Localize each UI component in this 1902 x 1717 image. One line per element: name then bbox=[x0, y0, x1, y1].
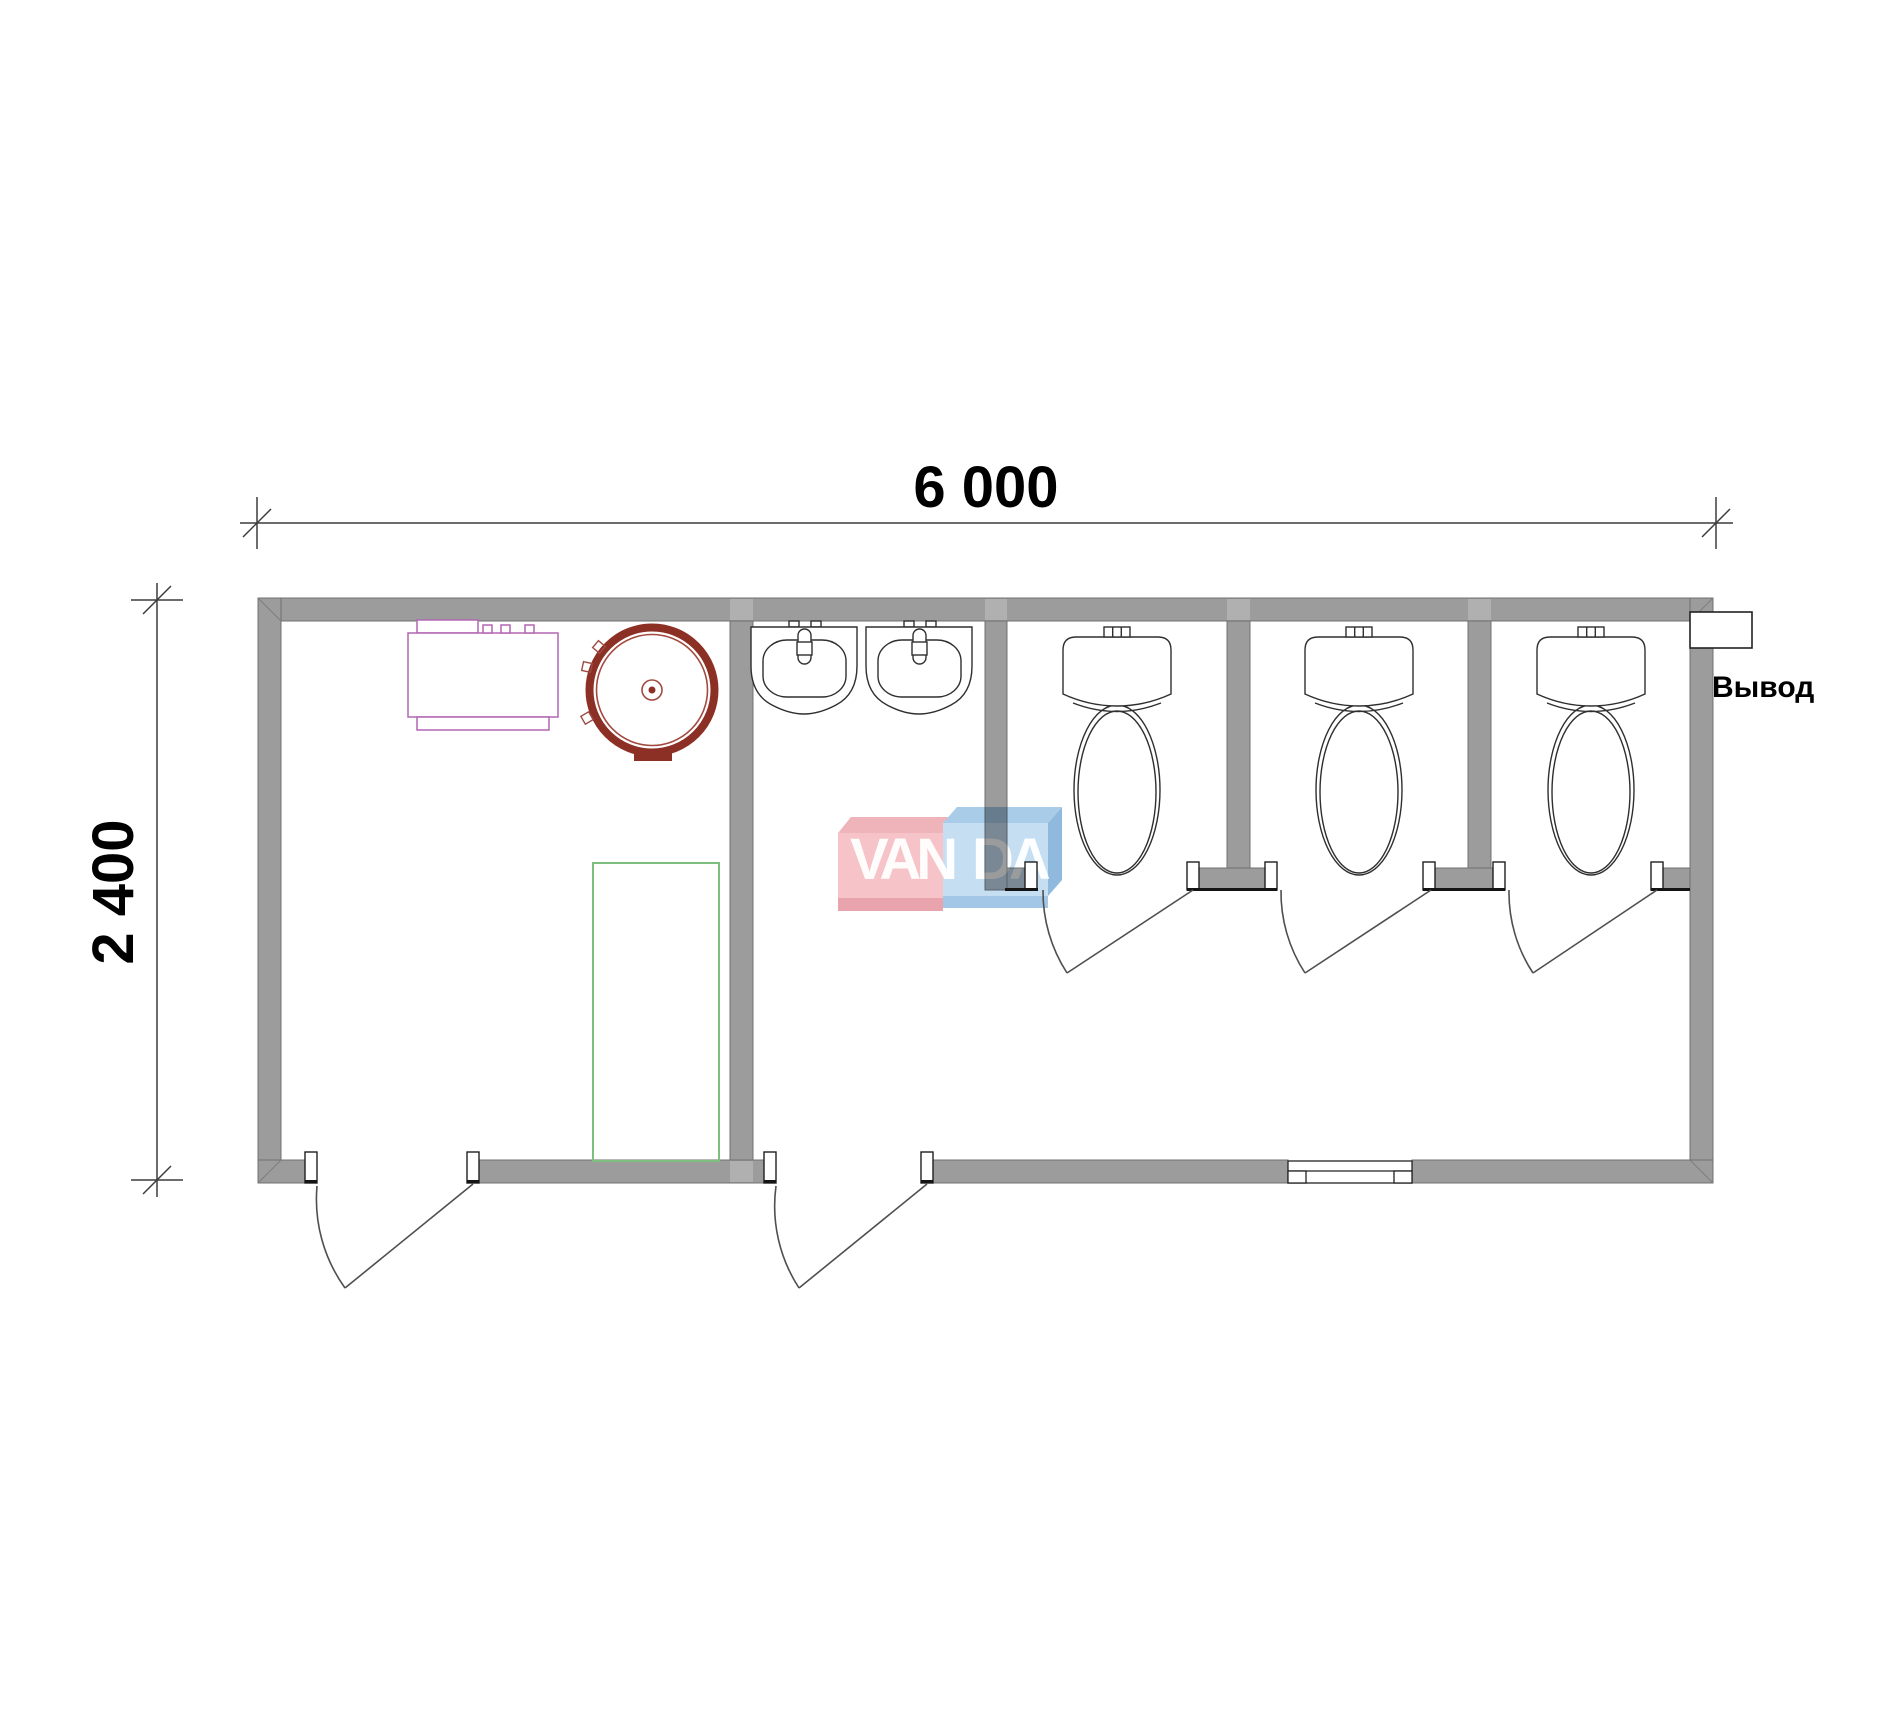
thresholds bbox=[305, 890, 1690, 1182]
toilet-tank bbox=[1305, 637, 1413, 706]
washbasin-1 bbox=[751, 621, 857, 714]
toilet-bowl-outer bbox=[1074, 705, 1160, 875]
jamb bbox=[1025, 862, 1037, 890]
wall-tap bbox=[789, 621, 799, 627]
jamb bbox=[921, 1152, 933, 1183]
window-end-block bbox=[1394, 1171, 1412, 1183]
boiler-knob bbox=[501, 625, 510, 633]
door-leaf bbox=[345, 1184, 473, 1288]
flush-buttons bbox=[1578, 627, 1604, 637]
stall-door-2 bbox=[1281, 890, 1431, 973]
boiler-knob bbox=[525, 625, 534, 633]
round-water-tank bbox=[581, 628, 715, 762]
window bbox=[1288, 1161, 1412, 1183]
door-swing-arc bbox=[1509, 890, 1533, 973]
door-jambs bbox=[305, 862, 1663, 1183]
wall-bottom-seg2 bbox=[479, 1160, 764, 1183]
tank-base-bracket bbox=[634, 752, 672, 761]
jamb bbox=[467, 1152, 479, 1183]
flush-buttons bbox=[1104, 627, 1130, 637]
toilet-2 bbox=[1305, 627, 1413, 875]
toilet-bowl-outer bbox=[1316, 705, 1402, 875]
watermark-text-van: VAN bbox=[850, 827, 954, 892]
toilets bbox=[1063, 627, 1645, 875]
vanda-watermark: VAN DA bbox=[838, 807, 1062, 911]
wall-seam-1 bbox=[730, 599, 753, 620]
jamb bbox=[1493, 862, 1505, 890]
door-leaf bbox=[1533, 890, 1657, 973]
floor-plan-page: VAN DA bbox=[0, 0, 1902, 1717]
exterior-door-1 bbox=[316, 1184, 473, 1288]
jamb bbox=[764, 1152, 776, 1183]
faucet-valve bbox=[797, 642, 812, 655]
boiler-top-lip bbox=[417, 620, 478, 633]
door-swing-arc bbox=[316, 1186, 345, 1288]
wall-bottom-seg1 bbox=[258, 1160, 305, 1183]
wall-tap bbox=[926, 621, 936, 627]
wall-tap bbox=[811, 621, 821, 627]
wall-bottom-seg3 bbox=[933, 1160, 1288, 1183]
wall-stall-partition-1 bbox=[985, 621, 1007, 890]
toilet-tank bbox=[1063, 637, 1171, 706]
tank-center-dot bbox=[649, 687, 656, 694]
washbasins bbox=[751, 621, 972, 714]
jamb bbox=[1265, 862, 1277, 890]
boiler-unit bbox=[408, 620, 558, 730]
door-swing-arc bbox=[1281, 890, 1305, 973]
wall-left bbox=[258, 598, 281, 1183]
wall-room-partition bbox=[730, 621, 753, 1160]
jamb bbox=[305, 1152, 317, 1183]
door-swing-arc bbox=[775, 1186, 799, 1288]
wall-stall1-front-stub bbox=[1007, 868, 1025, 890]
wall-seam-3 bbox=[1227, 599, 1250, 620]
wall-seam-4 bbox=[1468, 599, 1491, 620]
doors bbox=[316, 890, 1657, 1288]
boiler-body bbox=[408, 633, 558, 717]
boiler-knob bbox=[483, 625, 492, 633]
dimension-top-label: 6 000 bbox=[913, 455, 1058, 520]
jamb bbox=[1423, 862, 1435, 890]
watermark-pink-shadow bbox=[838, 898, 943, 911]
wall-bottom-seg4 bbox=[1412, 1160, 1713, 1183]
faucet-valve bbox=[912, 642, 927, 655]
flush-buttons bbox=[1346, 627, 1372, 637]
shower-tray bbox=[593, 863, 719, 1161]
window-end-block bbox=[1288, 1171, 1306, 1183]
exterior-door-2 bbox=[775, 1184, 927, 1288]
boiler-bottom-lip bbox=[417, 717, 549, 730]
door-leaf bbox=[1305, 890, 1431, 973]
wall-seam-2 bbox=[985, 599, 1007, 620]
door-leaf bbox=[1067, 890, 1193, 973]
wall-stall3-right-stub bbox=[1663, 868, 1690, 890]
outlet-label: Вывод bbox=[1712, 671, 1814, 704]
washbasin-2 bbox=[866, 621, 972, 714]
toilet-tank bbox=[1537, 637, 1645, 706]
door-leaf bbox=[799, 1184, 927, 1288]
wall-stall-partition-3 bbox=[1468, 621, 1491, 868]
jamb bbox=[1187, 862, 1199, 890]
toilet-1 bbox=[1063, 627, 1171, 875]
wall-seam-5 bbox=[730, 1161, 753, 1182]
toilet-3 bbox=[1537, 627, 1645, 875]
wall-tap bbox=[904, 621, 914, 627]
watermark-blue-shadow bbox=[943, 896, 1048, 908]
dimension-left-label: 2 400 bbox=[81, 819, 146, 964]
jamb bbox=[1651, 862, 1663, 890]
stall-door-3 bbox=[1509, 890, 1657, 973]
toilet-bowl-outer bbox=[1548, 705, 1634, 875]
utility-outlet-box bbox=[1690, 612, 1752, 648]
wall-stall3-front-stub bbox=[1435, 868, 1493, 890]
floor-plan-canvas: VAN DA bbox=[0, 0, 1902, 1717]
wall-stall-partition-2 bbox=[1227, 621, 1250, 868]
wall-stall2-front-stub bbox=[1199, 868, 1265, 890]
stall-door-1 bbox=[1043, 890, 1193, 973]
wall-right bbox=[1690, 598, 1713, 1183]
